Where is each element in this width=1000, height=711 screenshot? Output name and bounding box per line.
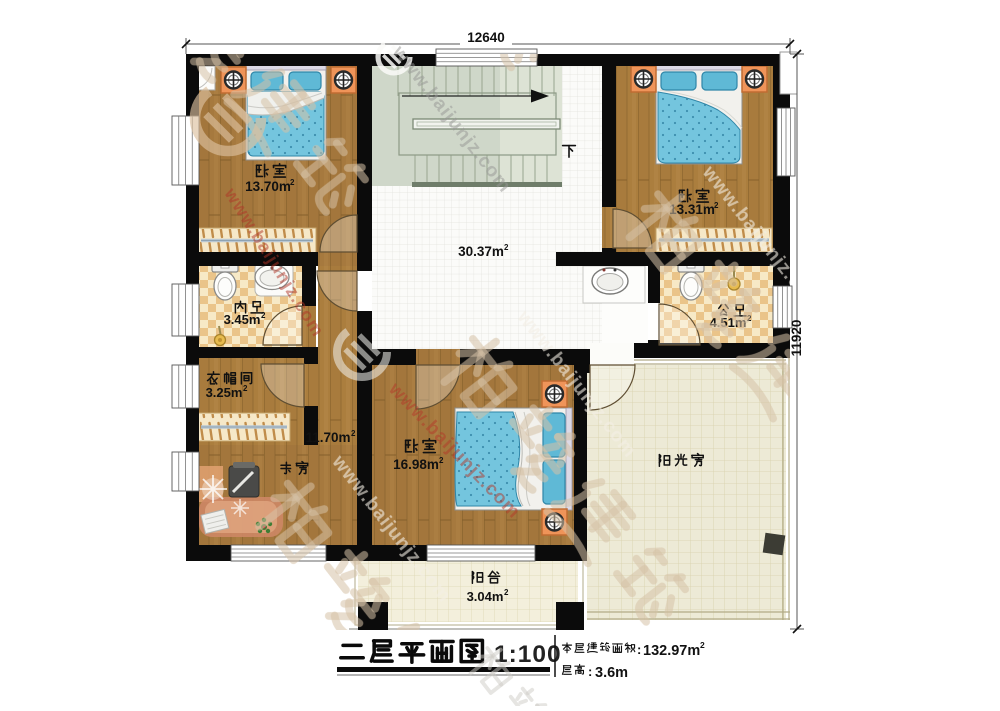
svg-text::: : <box>588 664 592 679</box>
svg-text:11920: 11920 <box>789 320 804 357</box>
svg-text:3.6m: 3.6m <box>595 665 628 681</box>
svg-text::: : <box>637 642 641 657</box>
svg-text:12640: 12640 <box>467 30 505 45</box>
svg-text:132.97m: 132.97m <box>643 643 700 659</box>
svg-text:2: 2 <box>700 640 705 650</box>
